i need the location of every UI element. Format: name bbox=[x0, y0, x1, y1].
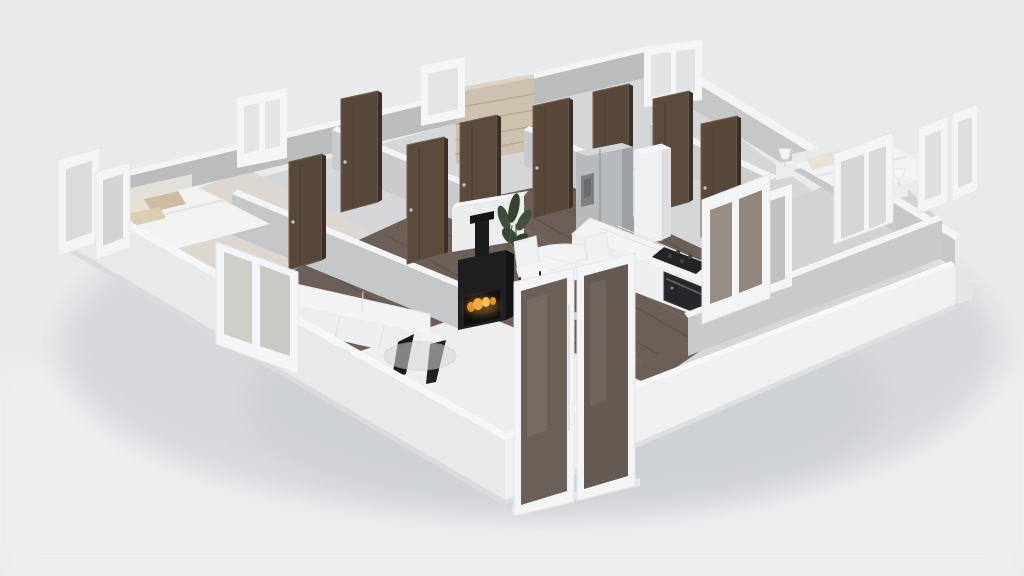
window-pane bbox=[66, 161, 92, 242]
window-pane bbox=[244, 103, 259, 154]
window-pane bbox=[428, 67, 458, 116]
window-pane bbox=[841, 154, 864, 239]
door-handle bbox=[343, 160, 346, 163]
door-handle bbox=[703, 186, 706, 189]
floorplan-3d-render bbox=[0, 0, 1024, 576]
window-pane bbox=[869, 146, 886, 229]
door-edge bbox=[444, 137, 448, 254]
glass-reflection bbox=[527, 294, 547, 437]
burner bbox=[676, 250, 680, 254]
fire-flame bbox=[482, 297, 490, 307]
door-handle bbox=[462, 183, 465, 186]
door-edge bbox=[569, 98, 573, 209]
door-panel bbox=[289, 154, 322, 270]
door-edge bbox=[689, 91, 693, 202]
burner bbox=[668, 254, 672, 258]
burner bbox=[680, 259, 684, 263]
door-edge bbox=[322, 154, 326, 260]
window-pane bbox=[224, 252, 252, 344]
fireplace-side bbox=[506, 250, 514, 320]
door-edge bbox=[378, 91, 382, 202]
fire-flame bbox=[490, 297, 496, 305]
floorplan-scene bbox=[0, 0, 1024, 576]
door-panel bbox=[533, 98, 569, 219]
tall-cabinet-side bbox=[662, 144, 671, 240]
window-pane bbox=[710, 202, 732, 304]
refrigerator-dispenser-inset bbox=[584, 178, 591, 198]
window-pane bbox=[925, 130, 941, 200]
window-pane bbox=[265, 99, 280, 150]
window-pane bbox=[739, 190, 762, 293]
window-pane bbox=[651, 52, 671, 97]
door-handle bbox=[291, 220, 294, 223]
window-pane bbox=[103, 174, 123, 246]
door-handle bbox=[409, 208, 412, 211]
burner bbox=[688, 255, 692, 259]
tall-cabinet bbox=[634, 144, 662, 246]
oven-display bbox=[671, 287, 674, 290]
window-pane bbox=[958, 117, 972, 188]
glass-reflection bbox=[590, 279, 606, 406]
coffee-table-glass bbox=[384, 342, 456, 370]
door-panel bbox=[407, 137, 444, 264]
fire-flame bbox=[473, 298, 483, 310]
window-pane bbox=[676, 49, 695, 93]
window-pane bbox=[260, 265, 290, 356]
door-panel bbox=[341, 91, 378, 212]
door-handle bbox=[535, 166, 538, 169]
